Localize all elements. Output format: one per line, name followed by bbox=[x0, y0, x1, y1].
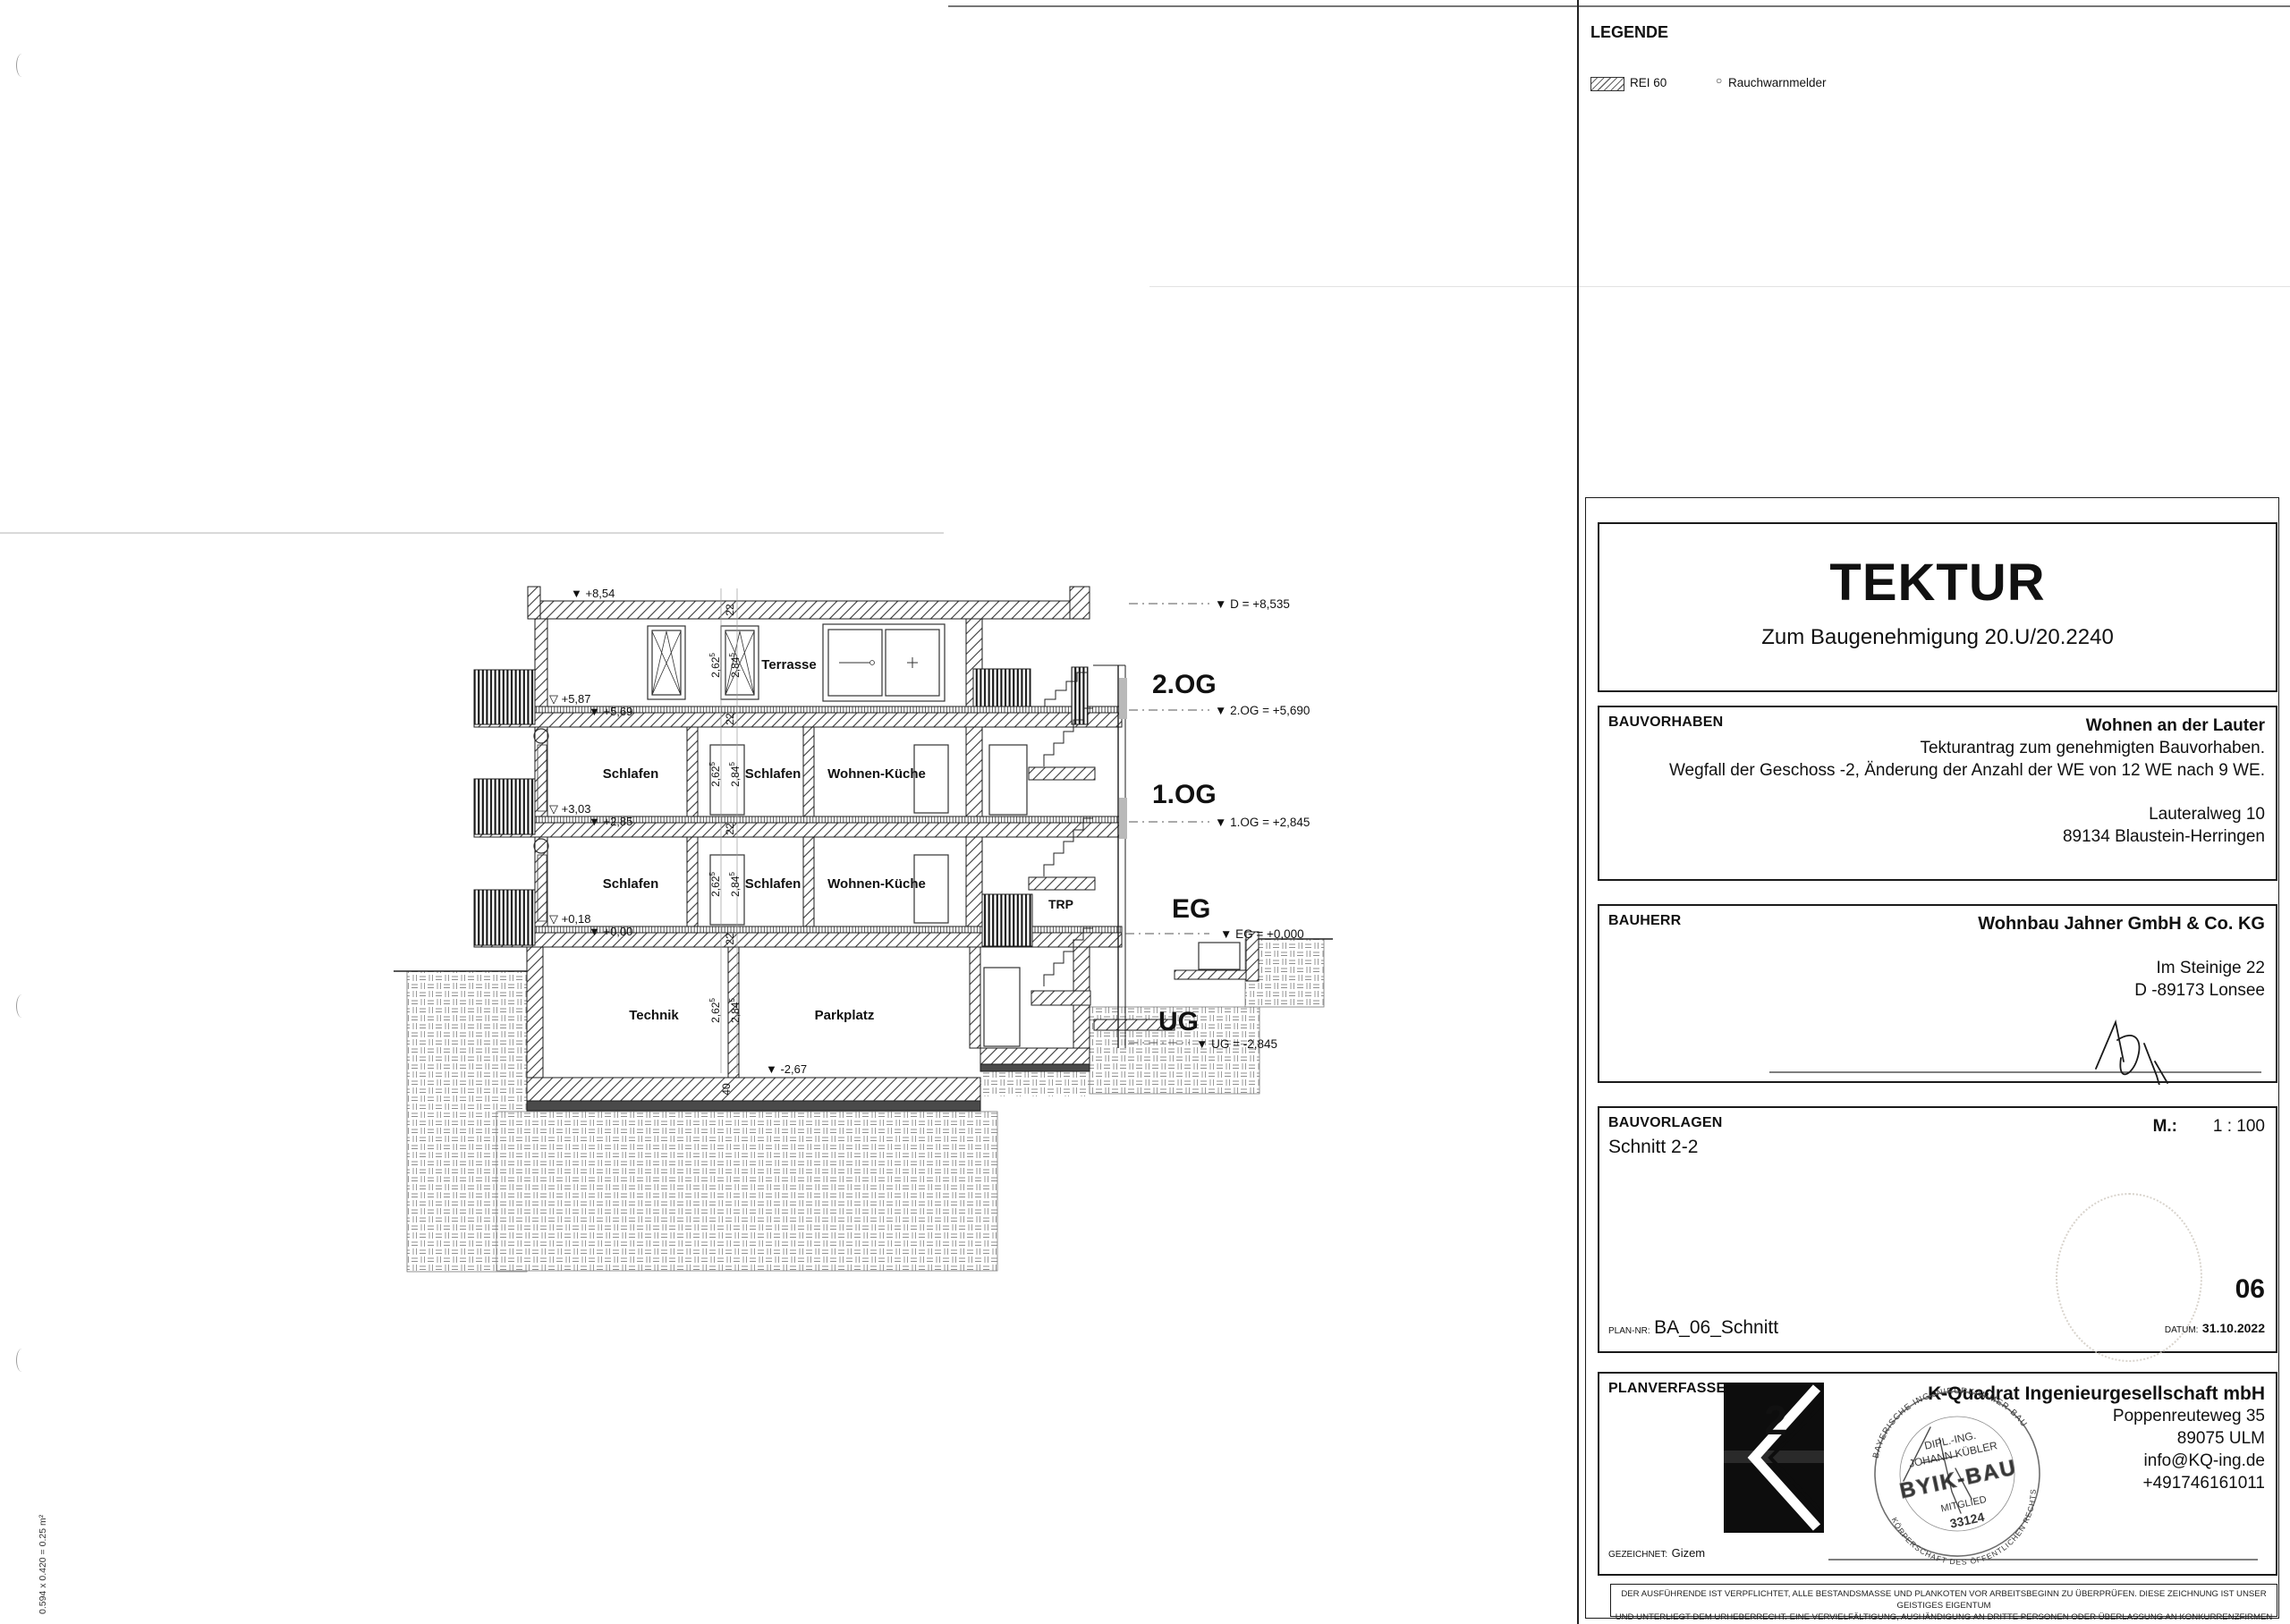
svg-text:22: 22 bbox=[724, 713, 736, 725]
legend: LEGENDE REI 60 ○ Rauchwarnmelder bbox=[1590, 23, 2270, 42]
legend-title: LEGENDE bbox=[1590, 23, 2270, 42]
svg-text:▼ +8,54: ▼ +8,54 bbox=[571, 587, 615, 600]
tektur-title: TEKTUR bbox=[1599, 553, 2276, 613]
smoke-detector-icon: ○ bbox=[1716, 74, 1722, 87]
project-city: 89134 Blaustein-Herringen bbox=[1639, 825, 2265, 848]
project-desc-2: Wegfall der Geschoss -2, Änderung der An… bbox=[1639, 759, 2265, 782]
tektur-box: TEKTUR Zum Baugenehmigung 20.U/20.2240 bbox=[1598, 522, 2277, 692]
plan-sheet: 0.594 x 0.420 = 0.25 m² bbox=[0, 0, 2290, 1624]
door bbox=[984, 968, 1020, 1046]
room-label-schlafen: Schlafen bbox=[745, 876, 801, 892]
planverfasser-box: PLANVERFASSER 2 K-Quadrat Ingenieurgesel… bbox=[1598, 1372, 2277, 1576]
window-tilt-turn bbox=[648, 626, 685, 699]
svg-text:22: 22 bbox=[724, 604, 736, 616]
room-label-wohnen-kueche: Wohnen-Küche bbox=[827, 766, 926, 782]
project-street: Lauteralweg 10 bbox=[1639, 803, 2265, 825]
project-desc-1: Tekturantrag zum genehmigten Bauvorhaben… bbox=[1639, 737, 2265, 759]
bauvorlagen-label: BAUVORLAGEN bbox=[1608, 1115, 1723, 1131]
level-og1: ▼ 1.OG = +2,845 bbox=[1215, 816, 1310, 829]
svg-text:22: 22 bbox=[724, 933, 736, 945]
svg-text:33124: 33124 bbox=[1948, 1510, 1986, 1531]
svg-text:22: 22 bbox=[724, 823, 736, 835]
level-d: ▼ D = +8,535 bbox=[1215, 597, 1290, 611]
tektur-subtitle: Zum Baugenehmigung 20.U/20.2240 bbox=[1599, 625, 2276, 650]
svg-text:2,845: 2,845 bbox=[728, 653, 742, 678]
bauherr-box: BAUHERR Wohnbau Jahner GmbH & Co. KG Im … bbox=[1598, 904, 2277, 1083]
svg-text:2,845: 2,845 bbox=[728, 762, 742, 787]
floor-label-og1: 1.OG bbox=[1152, 780, 1217, 809]
drawing-content-label: Schnitt 2-2 bbox=[1608, 1137, 1698, 1158]
svg-text:▼ +2,85: ▼ +2,85 bbox=[589, 815, 632, 828]
svg-text:2,625: 2,625 bbox=[708, 762, 722, 787]
disclaimer-line-2: UND UNTERLIEGT DEM URHEBERRECHT. EINE VE… bbox=[1611, 1611, 2277, 1624]
room-label-schlafen: Schlafen bbox=[745, 766, 801, 782]
room-label-schlafen: Schlafen bbox=[603, 876, 659, 892]
level-og2: ▼ 2.OG = +5,690 bbox=[1215, 704, 1310, 717]
sheet-number: 06 bbox=[2235, 1274, 2265, 1305]
svg-text:2,625: 2,625 bbox=[708, 998, 722, 1023]
svg-text:▼ +0,00: ▼ +0,00 bbox=[589, 925, 632, 938]
plannr-label: PLAN-NR: bbox=[1608, 1326, 1650, 1336]
room-label-parkplatz: Parkplatz bbox=[815, 1008, 875, 1023]
plannr-value: BA_06_Schnitt bbox=[1654, 1317, 1778, 1338]
room-label-schlafen: Schlafen bbox=[603, 766, 659, 782]
gezeichnet-label: GEZEICHNET: bbox=[1608, 1550, 1667, 1560]
sliding-door bbox=[823, 624, 945, 701]
level-ug: ▼ UG = -2,845 bbox=[1196, 1037, 1277, 1051]
legend-rwm-label: Rauchwarnmelder bbox=[1728, 76, 1827, 89]
scale-value: 1 : 100 bbox=[2213, 1117, 2265, 1137]
client-signature bbox=[1599, 906, 2279, 1085]
svg-text:2,625: 2,625 bbox=[708, 872, 722, 897]
room-label-trp: TRP bbox=[1048, 897, 1073, 911]
disclaimer-box: DER AUSFÜHRENDE IST VERPFLICHTET, ALLE B… bbox=[1610, 1584, 2277, 1617]
svg-text:40: 40 bbox=[720, 1083, 733, 1095]
gezeichnet-value: Gizem bbox=[1672, 1546, 1706, 1560]
floor-label-ug: UG bbox=[1158, 1007, 1199, 1036]
svg-text:▽ +0,18: ▽ +0,18 bbox=[549, 912, 591, 926]
svg-text:2,625: 2,625 bbox=[708, 653, 722, 678]
bauvorlagen-box: BAUVORLAGEN Schnitt 2-2 M.: 1 : 100 06 P… bbox=[1598, 1106, 2277, 1353]
room-label-terrasse: Terrasse bbox=[761, 657, 816, 672]
svg-text:▼ +5,69: ▼ +5,69 bbox=[589, 705, 632, 718]
legend-rei60-label: REI 60 bbox=[1630, 76, 1667, 89]
datum-label: DATUM: bbox=[2165, 1325, 2199, 1335]
floor-label-og2: 2.OG bbox=[1152, 670, 1217, 699]
project-name: Wohnen an der Lauter bbox=[1639, 715, 2265, 737]
rei60-hatch-swatch bbox=[1590, 77, 1624, 91]
bauvorhaben-box: BAUVORHABEN Wohnen an der Lauter Tektura… bbox=[1598, 706, 2277, 881]
scale-label: M.: bbox=[2153, 1117, 2177, 1137]
door bbox=[989, 745, 1027, 815]
svg-text:2,845: 2,845 bbox=[728, 998, 742, 1023]
svg-text:▽ +3,03: ▽ +3,03 bbox=[549, 802, 591, 816]
room-label-wohnen-kueche: Wohnen-Küche bbox=[827, 876, 926, 892]
svg-text:▼ -2,67: ▼ -2,67 bbox=[766, 1062, 807, 1076]
floor-label-eg: EG bbox=[1172, 894, 1210, 924]
svg-text:▽ +5,87: ▽ +5,87 bbox=[549, 692, 591, 706]
level-eg: ▼ EG = +0,000 bbox=[1220, 927, 1304, 941]
svg-text:2,845: 2,845 bbox=[728, 872, 742, 897]
disclaimer-line-1: DER AUSFÜHRENDE IST VERPFLICHTET, ALLE B… bbox=[1611, 1588, 2277, 1611]
room-label-technik: Technik bbox=[629, 1008, 679, 1023]
datum-value: 31.10.2022 bbox=[2202, 1321, 2265, 1335]
